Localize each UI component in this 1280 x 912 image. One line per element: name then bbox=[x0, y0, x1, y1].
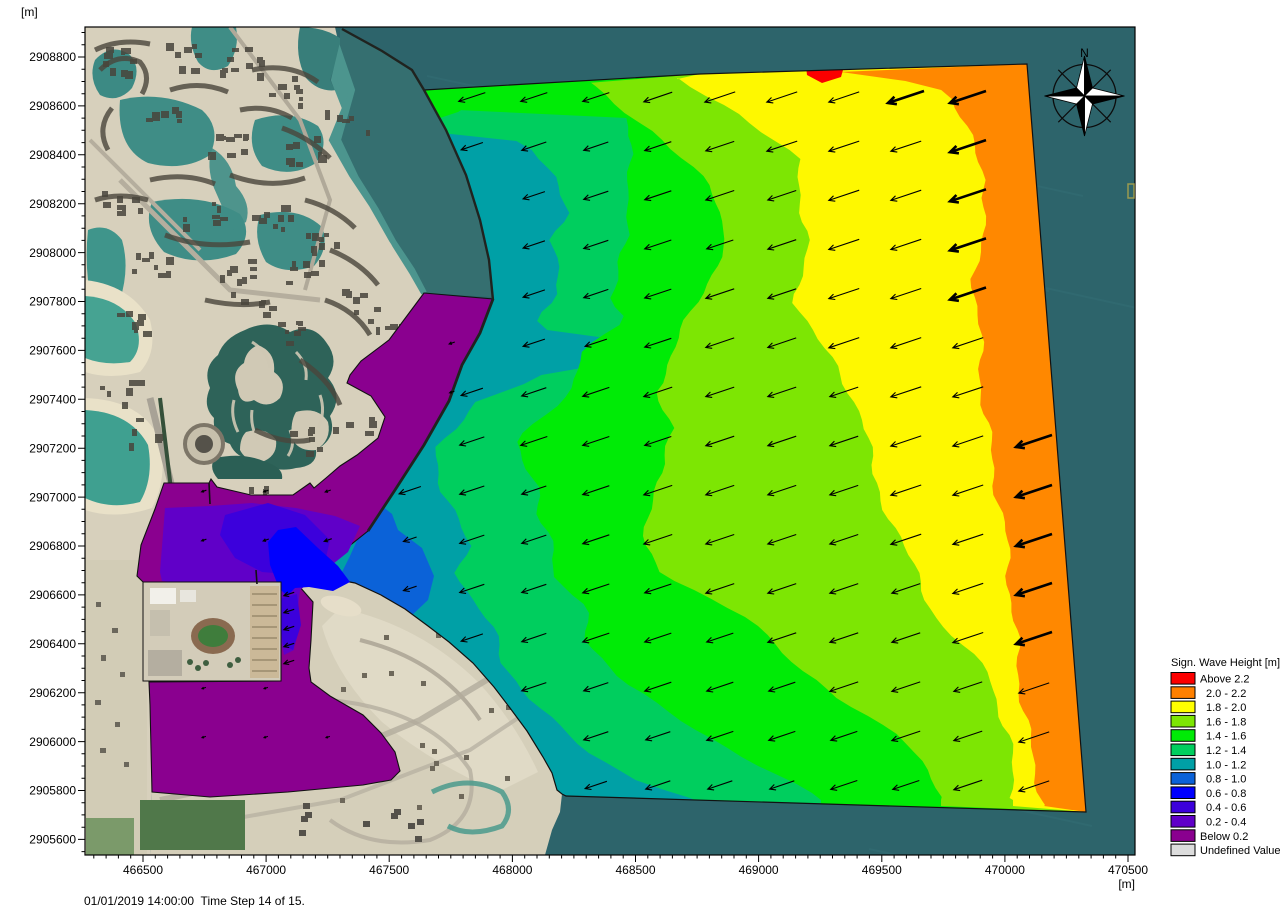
svg-text:469000: 469000 bbox=[739, 863, 779, 877]
svg-text:2906800: 2906800 bbox=[29, 539, 76, 553]
svg-text:1.0 - 1.2: 1.0 - 1.2 bbox=[1206, 759, 1246, 771]
svg-text:2905600: 2905600 bbox=[29, 833, 76, 847]
svg-text:Below 0.2: Below 0.2 bbox=[1200, 831, 1248, 843]
svg-text:Above 2.2: Above 2.2 bbox=[1200, 674, 1250, 686]
svg-text:2907600: 2907600 bbox=[29, 344, 76, 358]
svg-text:2.0 - 2.2: 2.0 - 2.2 bbox=[1206, 688, 1246, 700]
svg-text:2907400: 2907400 bbox=[29, 393, 76, 407]
svg-text:[m]: [m] bbox=[1118, 877, 1135, 891]
svg-text:2907800: 2907800 bbox=[29, 295, 76, 309]
svg-text:[m]: [m] bbox=[21, 5, 38, 19]
svg-text:467500: 467500 bbox=[369, 863, 409, 877]
svg-text:01/01/2019 14:00:00 Time Step: 01/01/2019 14:00:00 Time Step 14 of 15. bbox=[84, 894, 305, 908]
svg-text:466500: 466500 bbox=[123, 863, 163, 877]
svg-text:2908200: 2908200 bbox=[29, 197, 76, 211]
svg-text:470500: 470500 bbox=[1108, 863, 1148, 877]
svg-text:468000: 468000 bbox=[492, 863, 532, 877]
svg-text:2908800: 2908800 bbox=[29, 50, 76, 64]
svg-text:2906000: 2906000 bbox=[29, 735, 76, 749]
svg-text:2908000: 2908000 bbox=[29, 246, 76, 260]
svg-text:467000: 467000 bbox=[246, 863, 286, 877]
svg-text:0.8 - 1.0: 0.8 - 1.0 bbox=[1206, 774, 1246, 786]
svg-text:468500: 468500 bbox=[615, 863, 655, 877]
svg-text:2907000: 2907000 bbox=[29, 490, 76, 504]
svg-text:2906200: 2906200 bbox=[29, 686, 76, 700]
svg-text:Sign. Wave Height [m]: Sign. Wave Height [m] bbox=[1171, 657, 1280, 669]
svg-text:2906400: 2906400 bbox=[29, 637, 76, 651]
svg-text:1.6 - 1.8: 1.6 - 1.8 bbox=[1206, 716, 1246, 728]
svg-text:469500: 469500 bbox=[862, 863, 902, 877]
svg-text:2907200: 2907200 bbox=[29, 441, 76, 455]
svg-text:2908400: 2908400 bbox=[29, 148, 76, 162]
svg-text:1.4 - 1.6: 1.4 - 1.6 bbox=[1206, 731, 1246, 743]
svg-text:N: N bbox=[1080, 46, 1089, 60]
svg-text:2906600: 2906600 bbox=[29, 588, 76, 602]
svg-text:470000: 470000 bbox=[985, 863, 1025, 877]
svg-text:0.2 - 0.4: 0.2 - 0.4 bbox=[1206, 817, 1246, 829]
svg-text:0.6 - 0.8: 0.6 - 0.8 bbox=[1206, 788, 1246, 800]
svg-text:Undefined Value: Undefined Value bbox=[1200, 845, 1280, 857]
svg-text:2908600: 2908600 bbox=[29, 99, 76, 113]
svg-text:0.4 - 0.6: 0.4 - 0.6 bbox=[1206, 802, 1246, 814]
svg-text:1.8 - 2.0: 1.8 - 2.0 bbox=[1206, 702, 1246, 714]
svg-text:2905800: 2905800 bbox=[29, 784, 76, 798]
svg-text:1.2 - 1.4: 1.2 - 1.4 bbox=[1206, 745, 1246, 757]
